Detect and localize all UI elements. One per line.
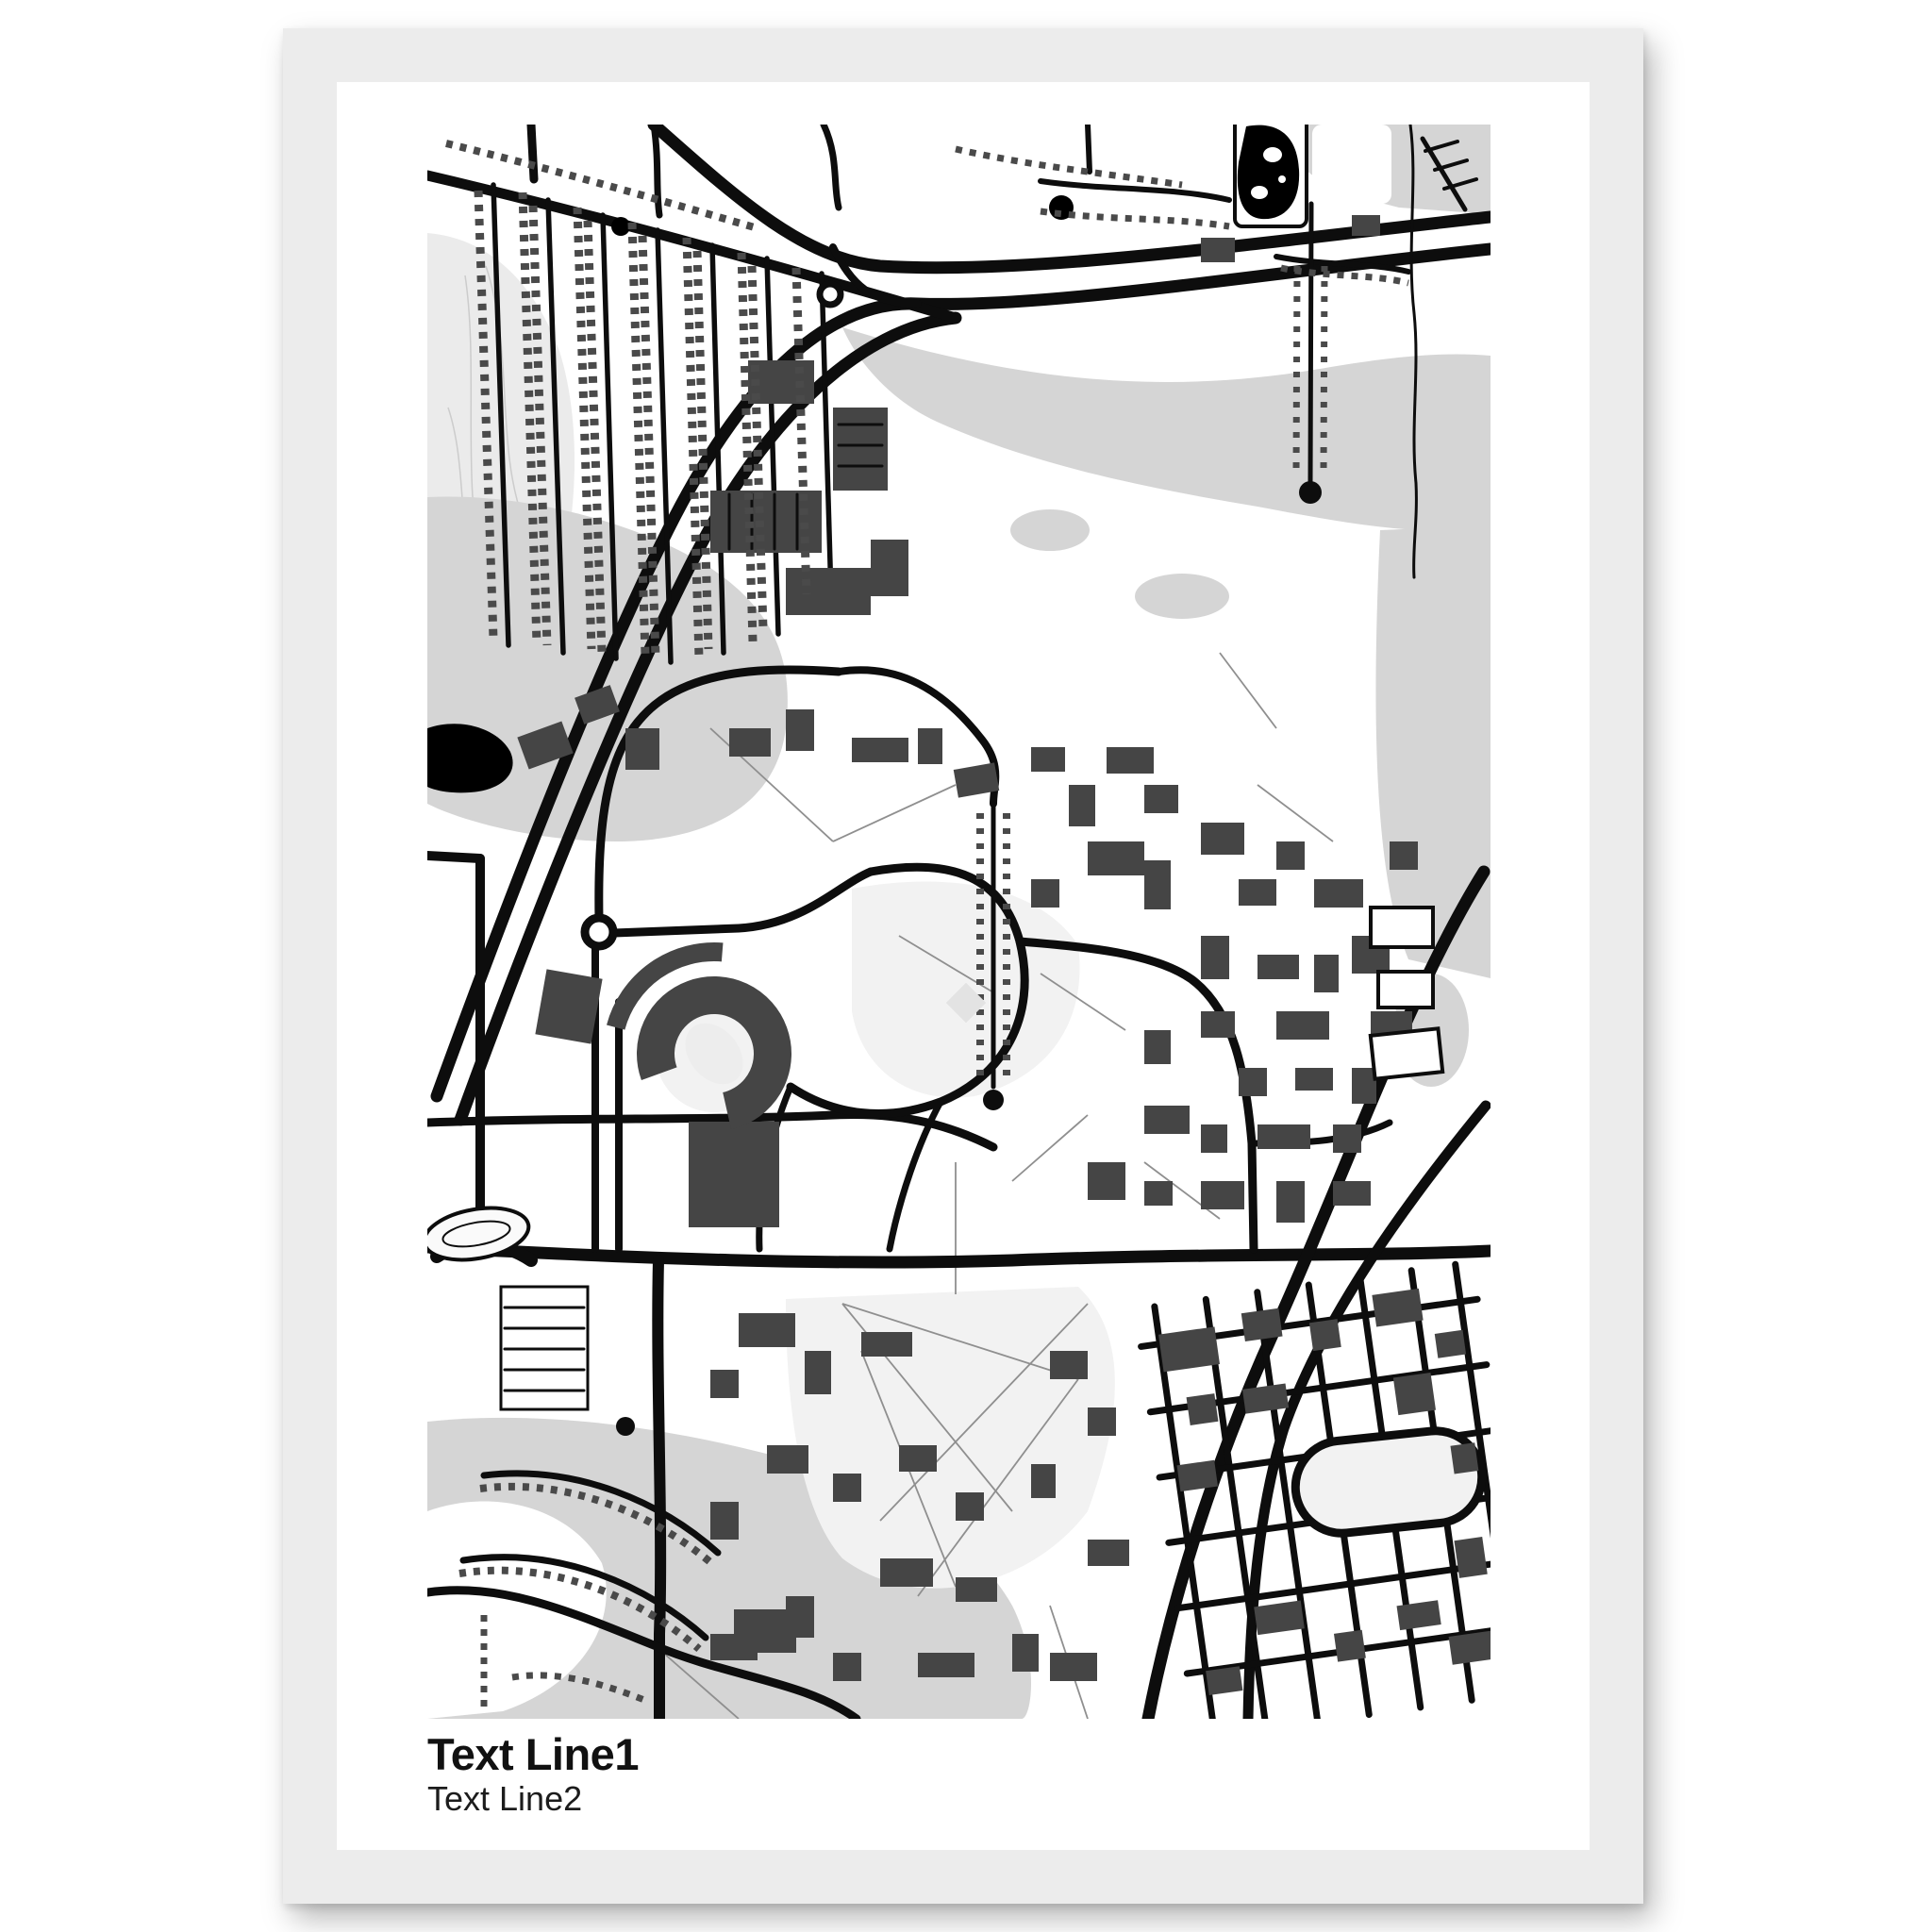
loop-road <box>1291 1426 1486 1538</box>
map-svg <box>427 125 1491 1719</box>
caption: Text Line1 Text Line2 <box>427 1731 639 1819</box>
caption-subtitle: Text Line2 <box>427 1779 639 1818</box>
map-artwork <box>427 125 1491 1719</box>
poster-print: Text Line1 Text Line2 <box>337 82 1590 1850</box>
caption-title: Text Line1 <box>427 1731 639 1777</box>
mockup-page: Text Line1 Text Line2 <box>0 0 1932 1932</box>
poster-frame: Text Line1 Text Line2 <box>283 28 1643 1904</box>
roundabout <box>585 918 613 946</box>
arena-building <box>689 1122 779 1227</box>
